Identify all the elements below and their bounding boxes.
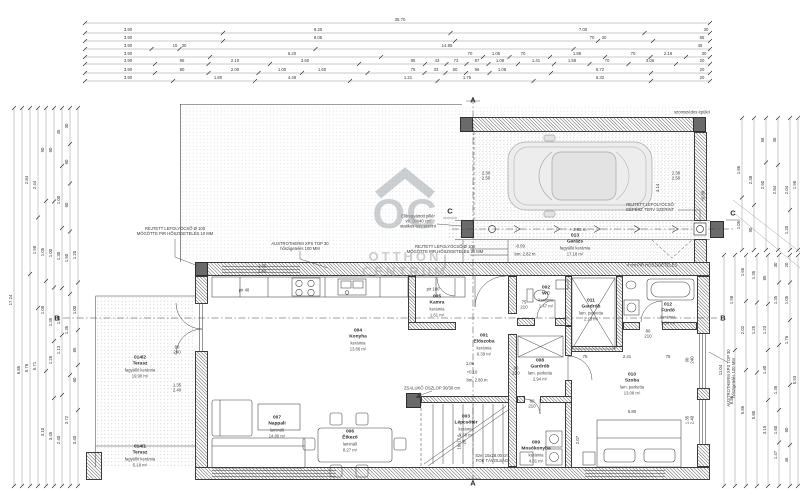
section-marker-b: B [720,314,725,323]
section-markers-layer: AABBCC [0,0,800,489]
section-marker-c: C [447,207,452,216]
floor-plan-canvas: 35.703.908.207.00303.908.057030653.90153… [0,0,800,489]
section-marker-a: A [470,96,475,105]
section-marker-a: A [470,479,475,488]
section-marker-c: C [730,209,735,218]
section-marker-b: B [54,314,59,323]
